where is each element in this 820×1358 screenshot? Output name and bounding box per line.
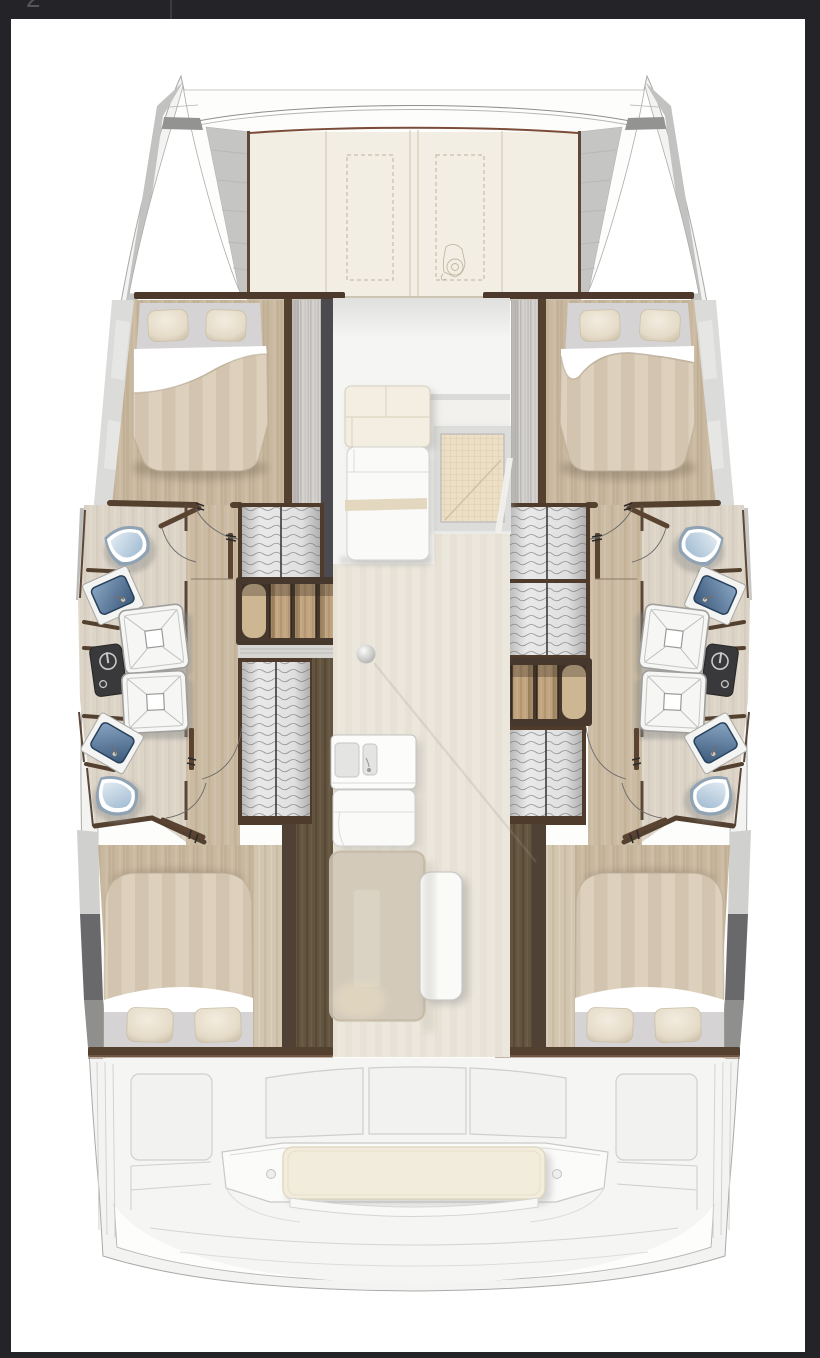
svg-text:2: 2 bbox=[26, 0, 40, 13]
